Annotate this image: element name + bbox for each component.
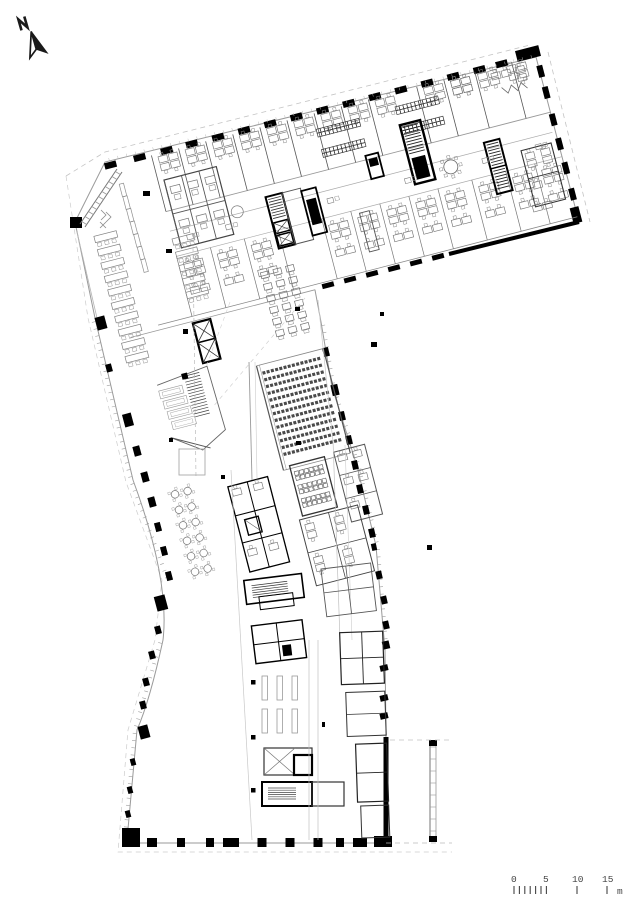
svg-text:m: m <box>617 886 623 897</box>
svg-text:0: 0 <box>511 874 517 885</box>
svg-text:5: 5 <box>543 874 549 885</box>
svg-text:15: 15 <box>602 874 614 885</box>
svg-text:10: 10 <box>572 874 584 885</box>
